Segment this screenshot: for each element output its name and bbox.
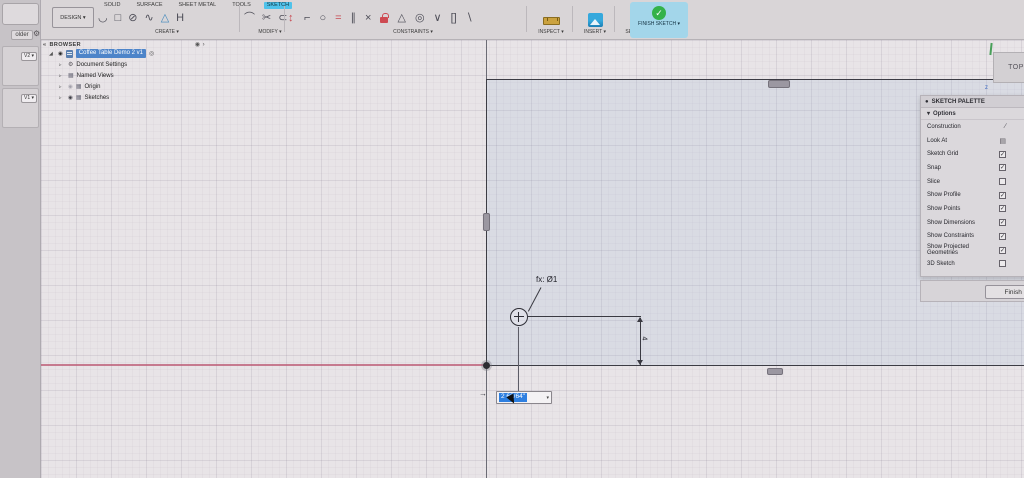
palette-row-label: Slice xyxy=(927,179,940,185)
inspect-dropdown[interactable]: INSPECT ▾ xyxy=(531,29,571,35)
fillet-icon[interactable]: ⌒ xyxy=(244,13,255,24)
radio-icon[interactable]: ◎ xyxy=(149,50,154,57)
palette-row-3d-sketch: 3D Sketch xyxy=(921,257,1024,271)
palette-row-label: Sketch Grid xyxy=(927,151,958,157)
dimension-direction-arrow: → xyxy=(479,389,487,398)
palette-dot-icon: ● xyxy=(925,99,929,105)
named-views-icon: ▦ xyxy=(68,72,74,79)
browser-panel: « BROWSER ◉ › ◢ ◉ Coffee Table Demo 2 v1… xyxy=(43,41,213,103)
palette-row-label: Show Constraints xyxy=(927,233,974,239)
palette-row-show-dimensions: Show Dimensions✓ xyxy=(921,216,1024,230)
version-thumbnail[interactable]: V2 ▾ xyxy=(2,46,39,86)
browser-item-label[interactable]: Origin xyxy=(84,84,100,90)
checkbox-show-projected-geometries[interactable]: ✓ xyxy=(999,247,1006,254)
browser-item-sketches[interactable]: ▹◉▦Sketches xyxy=(59,92,213,103)
insert-group: INSERT ▾ xyxy=(577,9,613,38)
viewcube[interactable]: TOP xyxy=(993,52,1024,83)
finish-sketch-footer-button[interactable]: Finish Sketch xyxy=(985,285,1024,299)
inspect-group: INSPECT ▾ xyxy=(531,9,571,38)
toolbar: DESIGN ▾ SOLIDSURFACESHEET METALTOOLSSKE… xyxy=(41,0,1024,40)
palette-row-slice: Slice xyxy=(921,175,1024,189)
palette-row-label: 3D Sketch xyxy=(927,261,955,267)
browser-item-label[interactable]: Sketches xyxy=(84,95,109,101)
design-menu-button[interactable]: DESIGN ▾ xyxy=(52,7,94,28)
look-at-icon[interactable]: ▤ xyxy=(999,138,1006,145)
dimension-arrow-icon xyxy=(637,317,643,322)
checkbox-show-constraints[interactable]: ✓ xyxy=(999,233,1006,240)
edge-dimension-tag[interactable] xyxy=(768,80,790,88)
create-group: ◡□⊘∿△H CREATE ▾ xyxy=(98,9,236,38)
browser-item-label[interactable]: Named Views xyxy=(77,73,114,79)
circle-icon[interactable]: ⊘ xyxy=(128,13,137,24)
palette-row-label: Show Points xyxy=(927,206,960,212)
palette-row-construction: Construction∕ xyxy=(921,120,1024,134)
expand-arrow-icon[interactable]: ▹ xyxy=(59,84,65,90)
version-thumbnail[interactable]: V1 ▾ xyxy=(2,88,39,128)
data-panel-search-box[interactable] xyxy=(2,3,39,25)
line-icon[interactable]: ◡ xyxy=(98,13,108,24)
create-dropdown[interactable]: CREATE ▾ xyxy=(98,29,236,35)
toolbar-divider xyxy=(284,6,285,32)
palette-options-section[interactable]: ▾ Options xyxy=(921,108,1024,120)
palette-row-look-at: Look At▤ xyxy=(921,134,1024,148)
collapse-panel-icon[interactable]: « xyxy=(43,42,46,48)
checkbox-show-profile[interactable]: ✓ xyxy=(999,192,1006,199)
version-badge[interactable]: V2 ▾ xyxy=(21,52,37,61)
palette-row-label: Look At xyxy=(927,138,947,144)
expand-arrow-icon[interactable]: ▹ xyxy=(59,73,65,79)
sketch-circle[interactable] xyxy=(510,308,528,326)
constraints-group: ⌐○=∥×△◎∨[]∖ CONSTRAINTS ▾ xyxy=(304,9,522,38)
palette-title: SKETCH PALETTE xyxy=(932,99,985,105)
options-label: Options xyxy=(933,111,956,117)
checkbox-3d-sketch[interactable] xyxy=(999,260,1006,267)
browser-item-document-settings[interactable]: ▹⚙Document Settings xyxy=(59,59,213,70)
palette-row-label: Show Dimensions xyxy=(927,220,975,226)
checkbox-show-dimensions[interactable]: ✓ xyxy=(999,219,1006,226)
spline-icon[interactable]: ∿ xyxy=(144,13,153,24)
toolbar-divider xyxy=(572,6,573,32)
toolbar-divider xyxy=(239,6,240,32)
viewcube-blue-axis: z xyxy=(985,86,990,91)
tangent-icon[interactable]: ○ xyxy=(319,13,326,24)
sketch-palette: ● SKETCH PALETTE ▾ Options Construction∕… xyxy=(920,95,1024,277)
browser-item-origin[interactable]: ▹◉▦Origin xyxy=(59,81,213,92)
dimension-arrow-icon xyxy=(637,360,643,365)
sketch-canvas[interactable]: fx: Ø1 4 → 2 63/64" ▾ z TOP « BROWSER ◉ … xyxy=(41,40,1024,478)
origin-point[interactable] xyxy=(483,362,490,369)
finish-sketch-button[interactable]: ✓ FINISH SKETCH ▾ xyxy=(630,2,688,38)
perpendicular-icon[interactable]: × xyxy=(365,13,371,24)
checkbox-sketch-grid[interactable]: ✓ xyxy=(999,151,1006,158)
palette-row-label: Construction xyxy=(927,124,961,130)
toolbar-divider xyxy=(526,6,527,32)
palette-row-show-profile: Show Profile✓ xyxy=(921,188,1024,202)
construction-line-icon[interactable]: ∕ xyxy=(1005,123,1006,130)
dimension-leader-line xyxy=(528,316,641,317)
expand-arrow-icon[interactable]: ◢ xyxy=(49,51,55,57)
dimension-input[interactable]: 2 63/64" ▾ xyxy=(496,391,552,404)
rectangle-icon[interactable]: □ xyxy=(115,13,122,24)
browser-display-icon[interactable]: ◉ › xyxy=(195,41,205,48)
expand-arrow-icon[interactable]: ▹ xyxy=(59,95,65,101)
palette-row-snap: Snap✓ xyxy=(921,161,1024,175)
browser-item-label[interactable]: Document Settings xyxy=(76,62,127,68)
edge-dimension-tag[interactable] xyxy=(483,213,490,231)
document-icon xyxy=(66,50,73,58)
offset-icon[interactable]: ⊂ xyxy=(278,13,287,24)
checkbox-slice[interactable] xyxy=(999,178,1006,185)
browser-title: BROWSER xyxy=(49,42,81,48)
eye-icon[interactable]: ◉ xyxy=(68,84,73,90)
sketch-dimension-icon[interactable]: ↕ xyxy=(288,13,294,24)
chevron-down-icon: ▾ xyxy=(927,110,930,117)
insert-image-icon[interactable] xyxy=(588,13,603,27)
checkbox-show-points[interactable]: ✓ xyxy=(999,205,1006,212)
palette-row-label: Show Projected Geometries xyxy=(927,244,999,256)
palette-row-show-projected-geometries: Show Projected Geometries✓ xyxy=(921,243,1024,257)
fx-diameter-label: fx: Ø1 xyxy=(536,275,557,284)
extension-line xyxy=(518,327,519,391)
midpoint-icon[interactable]: ∨ xyxy=(434,13,442,24)
data-panel: older ⚙ V2 ▾ V1 ▾ xyxy=(0,0,41,478)
palette-row-label: Snap xyxy=(927,165,941,171)
gear-icon[interactable]: ⚙ xyxy=(33,29,40,38)
sketch-palette-header[interactable]: ● SKETCH PALETTE xyxy=(921,96,1024,108)
vertical-dimension-line[interactable] xyxy=(640,318,641,365)
sketches-icon: ▦ xyxy=(76,94,82,101)
equal-icon[interactable]: = xyxy=(335,13,341,24)
palette-row-show-points: Show Points✓ xyxy=(921,202,1024,216)
palette-row-show-constraints: Show Constraints✓ xyxy=(921,230,1024,244)
browser-item-named-views[interactable]: ▹▦Named Views xyxy=(59,70,213,81)
symmetry-icon[interactable]: [] xyxy=(451,13,457,24)
toolbar-divider xyxy=(614,6,615,32)
palette-row-label: Show Profile xyxy=(927,192,961,198)
green-check-icon: ✓ xyxy=(652,6,666,20)
x-axis xyxy=(41,364,486,366)
horizontal-vertical-icon[interactable]: ⌐ xyxy=(304,13,310,24)
vertical-dimension-value[interactable]: 4 xyxy=(640,337,647,341)
gear-icon: ⚙ xyxy=(68,61,73,68)
edge-dimension-tag[interactable] xyxy=(767,368,783,375)
trim-icon[interactable]: ✂ xyxy=(262,13,271,24)
constraints-dropdown[interactable]: CONSTRAINTS ▾ xyxy=(304,29,522,35)
dimension-group: ↕ xyxy=(288,9,302,38)
smooth-icon[interactable]: ∖ xyxy=(466,13,473,24)
origin-icon: ▦ xyxy=(76,83,82,90)
folder-button[interactable]: older xyxy=(11,30,33,40)
version-badge[interactable]: V1 ▾ xyxy=(21,94,37,103)
chevron-down-icon[interactable]: ▾ xyxy=(546,395,549,401)
palette-row-sketch-grid: Sketch Grid✓ xyxy=(921,147,1024,161)
fusion-app-window: older ⚙ V2 ▾ V1 ▾ DESIGN ▾ SOLIDSURFACES… xyxy=(0,0,1024,478)
fix-icon[interactable] xyxy=(380,17,388,23)
slot-icon[interactable]: H xyxy=(176,13,184,24)
document-title[interactable]: Coffee Table Demo 2 v1 xyxy=(76,49,146,58)
insert-dropdown[interactable]: INSERT ▾ xyxy=(577,29,613,35)
measure-icon[interactable] xyxy=(543,17,560,25)
browser-root-item[interactable]: ◢ ◉ Coffee Table Demo 2 v1 ◎ xyxy=(49,48,213,59)
expand-arrow-icon[interactable]: ▹ xyxy=(59,62,65,68)
eye-icon[interactable]: ◉ xyxy=(68,95,73,101)
palette-footer: Finish Sketch xyxy=(920,280,1024,302)
parallel-icon[interactable]: ∥ xyxy=(351,13,357,24)
collinear-icon[interactable]: △ xyxy=(397,13,405,24)
eye-icon[interactable]: ◉ xyxy=(58,51,63,57)
checkbox-snap[interactable]: ✓ xyxy=(999,164,1006,171)
concentric-icon[interactable]: ◎ xyxy=(415,13,425,24)
polygon-icon[interactable]: △ xyxy=(161,13,169,24)
